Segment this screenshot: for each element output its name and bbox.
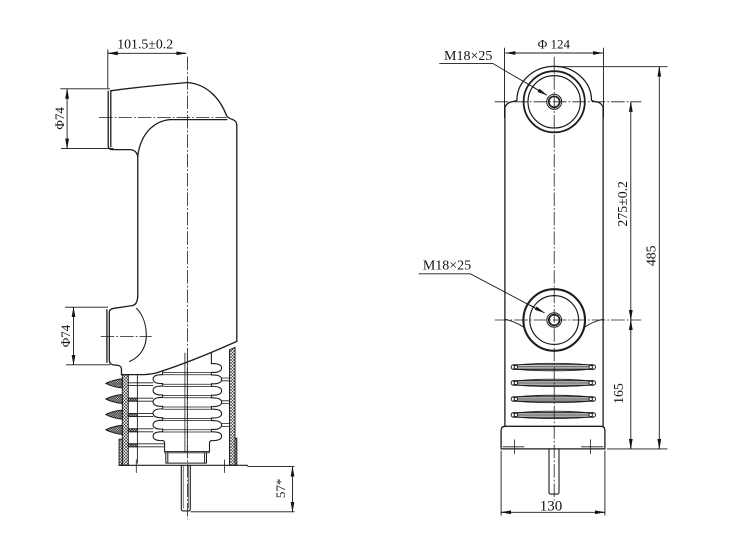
svg-text:275±0.2: 275±0.2 <box>615 181 630 227</box>
svg-text:130: 130 <box>540 498 563 514</box>
svg-text:M18×25: M18×25 <box>444 49 492 64</box>
svg-text:Φ74: Φ74 <box>58 324 73 347</box>
svg-text:57*: 57* <box>273 479 288 499</box>
svg-text:Φ74: Φ74 <box>52 107 67 130</box>
svg-text:485: 485 <box>644 245 659 266</box>
svg-text:165: 165 <box>611 383 626 404</box>
svg-text:101.5±0.2: 101.5±0.2 <box>117 36 173 51</box>
svg-text:Φ 124: Φ 124 <box>538 37 571 52</box>
svg-text:M18×25: M18×25 <box>423 258 471 273</box>
